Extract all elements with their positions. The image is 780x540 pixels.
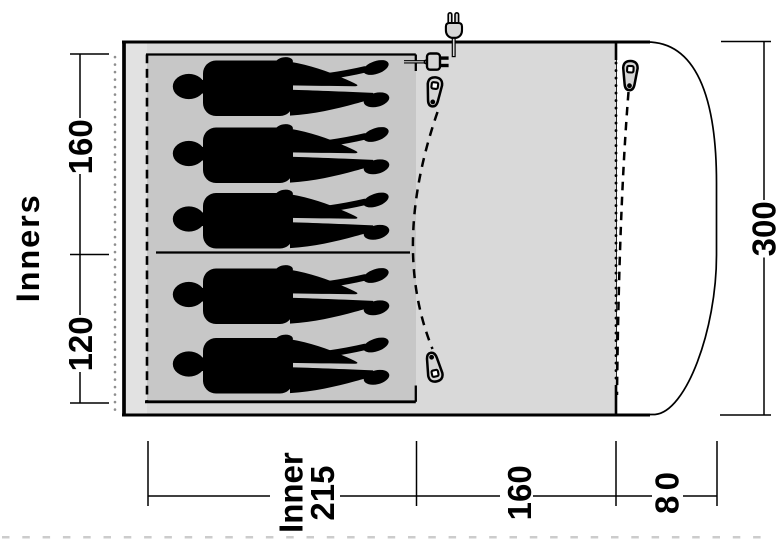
svg-text:Inners: Inners bbox=[10, 195, 46, 302]
svg-text:215: 215 bbox=[304, 466, 341, 521]
svg-text:160: 160 bbox=[501, 465, 538, 520]
svg-text:160: 160 bbox=[62, 119, 99, 174]
svg-text:80: 80 bbox=[649, 472, 686, 514]
svg-text:120: 120 bbox=[62, 316, 99, 371]
svg-text:300: 300 bbox=[746, 201, 780, 256]
